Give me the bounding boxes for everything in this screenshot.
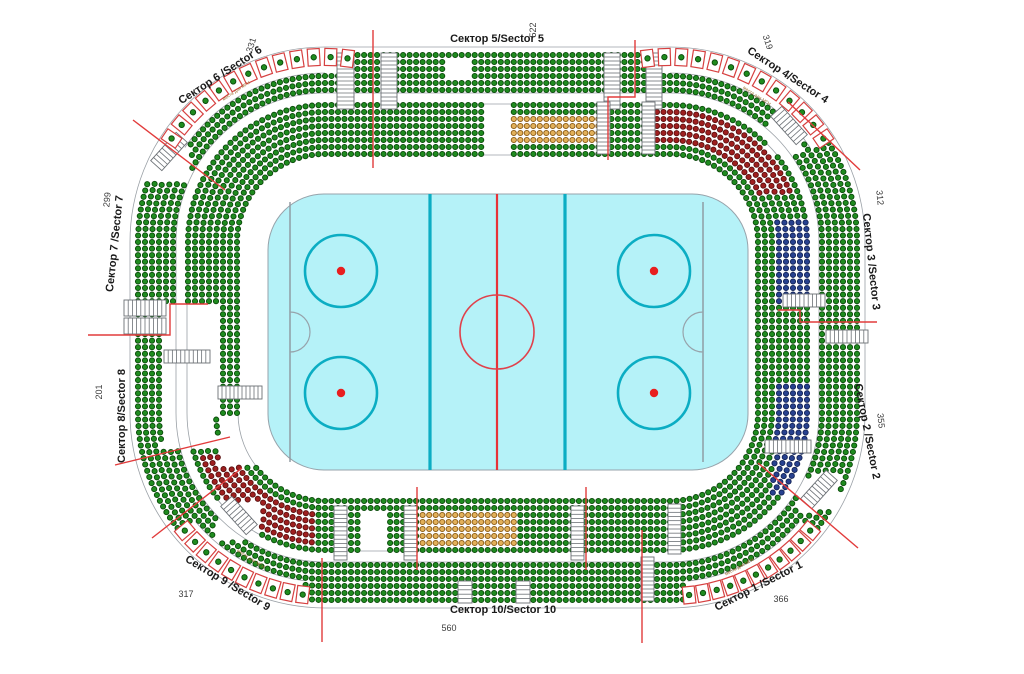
seat-dot[interactable]: [811, 461, 816, 466]
seat-dot[interactable]: [835, 195, 840, 200]
seat-dot[interactable]: [260, 532, 265, 537]
seat-dot[interactable]: [518, 540, 523, 545]
seat-dot[interactable]: [769, 259, 774, 264]
seat-dot[interactable]: [316, 81, 321, 86]
seat-dot[interactable]: [557, 87, 562, 92]
seat-dot[interactable]: [839, 214, 844, 219]
seat-dot[interactable]: [245, 497, 250, 502]
seat-dot[interactable]: [722, 162, 727, 167]
seat-dot[interactable]: [176, 502, 181, 507]
seat-dot[interactable]: [829, 201, 834, 206]
seat-dot[interactable]: [309, 103, 314, 108]
seat-dot[interactable]: [557, 562, 562, 567]
seat-dot[interactable]: [776, 338, 781, 343]
seat-dot[interactable]: [140, 449, 145, 454]
seat-dot[interactable]: [589, 151, 594, 156]
seat-dot[interactable]: [628, 130, 633, 135]
seat-dot[interactable]: [329, 526, 334, 531]
seat-dot[interactable]: [236, 185, 241, 190]
seat-dot[interactable]: [786, 479, 791, 484]
seat-dot[interactable]: [833, 391, 838, 396]
seat-dot[interactable]: [296, 567, 301, 572]
seat-dot[interactable]: [169, 491, 174, 496]
seat-dot[interactable]: [381, 130, 386, 135]
seat-dot[interactable]: [706, 108, 711, 113]
seat-dot[interactable]: [518, 505, 523, 510]
seat-dot[interactable]: [260, 101, 265, 106]
seat-dot[interactable]: [762, 312, 767, 317]
seat-dot[interactable]: [784, 201, 789, 206]
seat-dot[interactable]: [641, 505, 646, 510]
seat-dot[interactable]: [641, 498, 646, 503]
seat-dot[interactable]: [479, 505, 484, 510]
seat-dot[interactable]: [297, 90, 302, 95]
seat-dot[interactable]: [277, 80, 282, 85]
seat-dot[interactable]: [681, 81, 686, 86]
seat-dot[interactable]: [783, 358, 788, 363]
seat-dot[interactable]: [740, 190, 745, 195]
seat-dot[interactable]: [344, 55, 350, 61]
seat-dot[interactable]: [342, 583, 347, 588]
seat-dot[interactable]: [790, 239, 795, 244]
seat-dot[interactable]: [661, 512, 666, 517]
seat-dot[interactable]: [433, 130, 438, 135]
seat-dot[interactable]: [583, 590, 588, 595]
seat-dot[interactable]: [804, 246, 809, 251]
seat-dot[interactable]: [794, 518, 799, 523]
seat-dot[interactable]: [375, 597, 380, 602]
seat-dot[interactable]: [769, 364, 774, 369]
seat-dot[interactable]: [819, 285, 824, 290]
seat-dot[interactable]: [681, 152, 686, 157]
seat-dot[interactable]: [213, 134, 218, 139]
seat-dot[interactable]: [700, 77, 705, 82]
seat-dot[interactable]: [762, 305, 767, 310]
seat-dot[interactable]: [830, 443, 835, 448]
seat-dot[interactable]: [511, 80, 516, 85]
seat-dot[interactable]: [368, 562, 373, 567]
seat-dot[interactable]: [290, 522, 295, 527]
seat-dot[interactable]: [544, 526, 549, 531]
seat-dot[interactable]: [823, 207, 828, 212]
seat-dot[interactable]: [322, 130, 327, 135]
seat-dot[interactable]: [234, 305, 239, 310]
seat-dot[interactable]: [752, 518, 757, 523]
seat-dot[interactable]: [355, 130, 360, 135]
seat-dot[interactable]: [609, 597, 614, 602]
seat-dot[interactable]: [524, 569, 529, 574]
seat-dot[interactable]: [220, 109, 225, 114]
seat-dot[interactable]: [199, 272, 204, 277]
seat-dot[interactable]: [291, 121, 296, 126]
seat-dot[interactable]: [316, 590, 321, 595]
seat-dot[interactable]: [427, 130, 432, 135]
seat-dot[interactable]: [263, 475, 268, 480]
seat-dot[interactable]: [394, 505, 399, 510]
seat-dot[interactable]: [840, 285, 845, 290]
seat-dot[interactable]: [355, 59, 360, 64]
seat-dot[interactable]: [485, 66, 490, 71]
accessible-seat-box[interactable]: [256, 57, 273, 77]
accessible-seat-box[interactable]: [296, 585, 310, 603]
seat-dot[interactable]: [757, 190, 762, 195]
seat-dot[interactable]: [193, 490, 198, 495]
seat-dot[interactable]: [563, 109, 568, 114]
seat-dot[interactable]: [832, 430, 837, 435]
seat-dot[interactable]: [427, 505, 432, 510]
seat-dot[interactable]: [531, 583, 536, 588]
seat-dot[interactable]: [401, 80, 406, 85]
seat-dot[interactable]: [498, 597, 503, 602]
seat-dot[interactable]: [749, 483, 754, 488]
seat-dot[interactable]: [742, 124, 747, 129]
seat-dot[interactable]: [150, 417, 155, 422]
seat-dot[interactable]: [272, 507, 277, 512]
seat-dot[interactable]: [142, 345, 147, 350]
seat-dot[interactable]: [258, 180, 263, 185]
seat-dot[interactable]: [840, 397, 845, 402]
seat-dot[interactable]: [185, 239, 190, 244]
seat-dot[interactable]: [185, 259, 190, 264]
seat-dot[interactable]: [732, 480, 737, 485]
seat-dot[interactable]: [775, 155, 780, 160]
seat-dot[interactable]: [615, 526, 620, 531]
seat-dot[interactable]: [192, 266, 197, 271]
seat-dot[interactable]: [316, 103, 321, 108]
seat-dot[interactable]: [492, 590, 497, 595]
seat-dot[interactable]: [296, 516, 301, 521]
seat-dot[interactable]: [265, 566, 270, 571]
seat-dot[interactable]: [492, 547, 497, 552]
seat-dot[interactable]: [654, 590, 659, 595]
seat-dot[interactable]: [238, 196, 243, 201]
seat-dot[interactable]: [511, 137, 516, 142]
seat-dot[interactable]: [783, 246, 788, 251]
seat-dot[interactable]: [674, 81, 679, 86]
seat-dot[interactable]: [518, 116, 523, 121]
seat-dot[interactable]: [557, 590, 562, 595]
seat-dot[interactable]: [163, 456, 168, 461]
seat-dot[interactable]: [261, 150, 266, 155]
seat-dot[interactable]: [749, 157, 754, 162]
seat-dot[interactable]: [826, 170, 831, 175]
seat-dot[interactable]: [732, 180, 737, 185]
seat-dot[interactable]: [348, 137, 353, 142]
seat-dot[interactable]: [420, 52, 425, 57]
seat-dot[interactable]: [472, 151, 477, 156]
seat-dot[interactable]: [755, 364, 760, 369]
seat-dot[interactable]: [316, 88, 321, 93]
seat-dot[interactable]: [762, 246, 767, 251]
seat-dot[interactable]: [706, 542, 711, 547]
seat-dot[interactable]: [440, 526, 445, 531]
seat-dot[interactable]: [329, 80, 334, 85]
seat-dot[interactable]: [194, 220, 199, 225]
seat-dot[interactable]: [550, 80, 555, 85]
seat-dot[interactable]: [446, 533, 451, 538]
seat-dot[interactable]: [524, 498, 529, 503]
seat-dot[interactable]: [831, 468, 836, 473]
seat-dot[interactable]: [687, 132, 692, 137]
seat-dot[interactable]: [362, 80, 367, 85]
seat-dot[interactable]: [142, 246, 147, 251]
seat-dot[interactable]: [819, 410, 824, 415]
seat-dot[interactable]: [830, 163, 835, 168]
seat-dot[interactable]: [420, 87, 425, 92]
seat-dot[interactable]: [544, 540, 549, 545]
seat-dot[interactable]: [303, 82, 308, 87]
seat-dot[interactable]: [440, 73, 445, 78]
seat-dot[interactable]: [524, 540, 529, 545]
seat-dot[interactable]: [388, 130, 393, 135]
seat-dot[interactable]: [563, 123, 568, 128]
seat-dot[interactable]: [596, 512, 601, 517]
seat-dot[interactable]: [776, 417, 781, 422]
seat-dot[interactable]: [234, 378, 239, 383]
seat-dot[interactable]: [479, 144, 484, 149]
seat-dot[interactable]: [427, 547, 432, 552]
seat-dot[interactable]: [149, 378, 154, 383]
seat-dot[interactable]: [420, 569, 425, 574]
seat-dot[interactable]: [769, 227, 774, 232]
seat-dot[interactable]: [712, 132, 717, 137]
seat-dot[interactable]: [407, 597, 412, 602]
seat-dot[interactable]: [804, 351, 809, 356]
seat-dot[interactable]: [165, 499, 170, 504]
seat-dot[interactable]: [388, 583, 393, 588]
seat-dot[interactable]: [693, 560, 698, 565]
seat-dot[interactable]: [852, 443, 857, 448]
seat-dot[interactable]: [268, 162, 273, 167]
seat-dot[interactable]: [833, 266, 838, 271]
seat-dot[interactable]: [362, 87, 367, 92]
seat-dot[interactable]: [570, 562, 575, 567]
seat-dot[interactable]: [762, 397, 767, 402]
seat-dot[interactable]: [769, 467, 774, 472]
seat-dot[interactable]: [498, 59, 503, 64]
seat-dot[interactable]: [216, 472, 221, 477]
seat-dot[interactable]: [817, 436, 822, 441]
seat-dot[interactable]: [840, 305, 845, 310]
seat-dot[interactable]: [355, 73, 360, 78]
seat-dot[interactable]: [459, 52, 464, 57]
seat-dot[interactable]: [589, 123, 594, 128]
seat-dot[interactable]: [195, 213, 200, 218]
seat-dot[interactable]: [815, 449, 820, 454]
seat-dot[interactable]: [446, 52, 451, 57]
seat-dot[interactable]: [170, 194, 175, 199]
seat-dot[interactable]: [783, 233, 788, 238]
seat-dot[interactable]: [705, 505, 710, 510]
seat-dot[interactable]: [622, 80, 627, 85]
seat-dot[interactable]: [290, 128, 295, 133]
seat-dot[interactable]: [826, 351, 831, 356]
seat-dot[interactable]: [518, 66, 523, 71]
seat-dot[interactable]: [518, 52, 523, 57]
seat-dot[interactable]: [322, 102, 327, 107]
seat-dot[interactable]: [142, 272, 147, 277]
seat-dot[interactable]: [355, 151, 360, 156]
seat-dot[interactable]: [819, 423, 824, 428]
seat-dot[interactable]: [388, 123, 393, 128]
seat-dot[interactable]: [576, 87, 581, 92]
seat-dot[interactable]: [401, 498, 406, 503]
seat-dot[interactable]: [247, 100, 252, 105]
seat-dot[interactable]: [136, 417, 141, 422]
seat-dot[interactable]: [224, 155, 229, 160]
seat-dot[interactable]: [215, 155, 220, 160]
seat-dot[interactable]: [505, 576, 510, 581]
seat-dot[interactable]: [742, 543, 747, 548]
seat-dot[interactable]: [789, 194, 794, 199]
seat-dot[interactable]: [755, 285, 760, 290]
seat-dot[interactable]: [544, 533, 549, 538]
seat-dot[interactable]: [843, 450, 848, 455]
seat-dot[interactable]: [420, 137, 425, 142]
seat-dot[interactable]: [348, 562, 353, 567]
seat-dot[interactable]: [602, 597, 607, 602]
seat-dot[interactable]: [766, 178, 771, 183]
seat-dot[interactable]: [303, 118, 308, 123]
seat-dot[interactable]: [596, 498, 601, 503]
seat-dot[interactable]: [355, 102, 360, 107]
seat-dot[interactable]: [797, 259, 802, 264]
seat-dot[interactable]: [258, 170, 263, 175]
seat-dot[interactable]: [755, 259, 760, 264]
seat-dot[interactable]: [273, 167, 278, 172]
seat-dot[interactable]: [198, 449, 203, 454]
seat-dot[interactable]: [622, 583, 627, 588]
seat-dot[interactable]: [309, 131, 314, 136]
seat-dot[interactable]: [723, 130, 728, 135]
seat-dot[interactable]: [755, 351, 760, 356]
seat-dot[interactable]: [783, 404, 788, 409]
seat-dot[interactable]: [498, 540, 503, 545]
seat-dot[interactable]: [230, 110, 235, 115]
seat-dot[interactable]: [557, 519, 562, 524]
seat-dot[interactable]: [518, 512, 523, 517]
seat-dot[interactable]: [215, 195, 220, 200]
seat-dot[interactable]: [804, 158, 809, 163]
seat-dot[interactable]: [776, 272, 781, 277]
seat-dot[interactable]: [466, 512, 471, 517]
seat-dot[interactable]: [840, 410, 845, 415]
seat-dot[interactable]: [185, 253, 190, 258]
seat-dot[interactable]: [427, 80, 432, 85]
seat-dot[interactable]: [783, 253, 788, 258]
seat-dot[interactable]: [687, 139, 692, 144]
seat-dot[interactable]: [780, 189, 785, 194]
seat-dot[interactable]: [754, 552, 759, 557]
seat-dot[interactable]: [819, 351, 824, 356]
seat-dot[interactable]: [674, 131, 679, 136]
seat-dot[interactable]: [531, 576, 536, 581]
seat-dot[interactable]: [453, 130, 458, 135]
seat-dot[interactable]: [204, 208, 209, 213]
seat-dot[interactable]: [204, 479, 209, 484]
seat-dot[interactable]: [762, 318, 767, 323]
seat-dot[interactable]: [472, 533, 477, 538]
seat-dot[interactable]: [807, 513, 812, 518]
seat-dot[interactable]: [177, 455, 182, 460]
seat-dot[interactable]: [576, 144, 581, 149]
seat-dot[interactable]: [394, 533, 399, 538]
seat-dot[interactable]: [329, 123, 334, 128]
stair-block[interactable]: [458, 581, 472, 603]
seat-dot[interactable]: [835, 455, 840, 460]
seat-dot[interactable]: [414, 569, 419, 574]
seat-dot[interactable]: [238, 132, 243, 137]
seat-dot[interactable]: [381, 590, 386, 595]
seat-dot[interactable]: [531, 144, 536, 149]
seat-dot[interactable]: [394, 130, 399, 135]
seat-dot[interactable]: [199, 299, 204, 304]
seat-dot[interactable]: [790, 227, 795, 232]
seat-dot[interactable]: [245, 488, 250, 493]
seat-dot[interactable]: [297, 509, 302, 514]
seat-dot[interactable]: [172, 480, 177, 485]
stair-block[interactable]: [124, 300, 166, 316]
seat-dot[interactable]: [255, 496, 260, 501]
seat-dot[interactable]: [335, 576, 340, 581]
seat-dot[interactable]: [804, 318, 809, 323]
seat-dot[interactable]: [537, 597, 542, 602]
seat-dot[interactable]: [729, 517, 734, 522]
seat-dot[interactable]: [537, 59, 542, 64]
seat-dot[interactable]: [258, 470, 263, 475]
seat-dot[interactable]: [245, 153, 250, 158]
seat-dot[interactable]: [687, 511, 692, 516]
seat-dot[interactable]: [310, 562, 315, 567]
seat-dot[interactable]: [833, 292, 838, 297]
seat-dot[interactable]: [628, 569, 633, 574]
seat-dot[interactable]: [524, 526, 529, 531]
seat-dot[interactable]: [427, 102, 432, 107]
seat-dot[interactable]: [401, 102, 406, 107]
seat-dot[interactable]: [752, 196, 757, 201]
seat-dot[interactable]: [777, 466, 782, 471]
seat-dot[interactable]: [804, 226, 809, 231]
seat-dot[interactable]: [335, 583, 340, 588]
seat-dot[interactable]: [576, 137, 581, 142]
seat-dot[interactable]: [735, 145, 740, 150]
seat-dot[interactable]: [149, 397, 154, 402]
seat-dot[interactable]: [844, 207, 849, 212]
seat-dot[interactable]: [531, 116, 536, 121]
seat-dot[interactable]: [342, 562, 347, 567]
seat-dot[interactable]: [705, 145, 710, 150]
seat-dot[interactable]: [777, 184, 782, 189]
seat-dot[interactable]: [303, 104, 308, 109]
seat-dot[interactable]: [135, 345, 140, 350]
seat-dot[interactable]: [479, 562, 484, 567]
seat-dot[interactable]: [783, 259, 788, 264]
seat-dot[interactable]: [570, 73, 575, 78]
seat-dot[interactable]: [329, 137, 334, 142]
seat-dot[interactable]: [667, 144, 672, 149]
seat-dot[interactable]: [492, 505, 497, 510]
seat-dot[interactable]: [776, 318, 781, 323]
seat-dot[interactable]: [563, 590, 568, 595]
seat-dot[interactable]: [804, 423, 809, 428]
seat-dot[interactable]: [622, 151, 627, 156]
seat-dot[interactable]: [755, 272, 760, 277]
seat-dot[interactable]: [741, 179, 746, 184]
seat-dot[interactable]: [776, 299, 781, 304]
seat-dot[interactable]: [797, 253, 802, 258]
seat-dot[interactable]: [563, 576, 568, 581]
seat-dot[interactable]: [759, 214, 764, 219]
